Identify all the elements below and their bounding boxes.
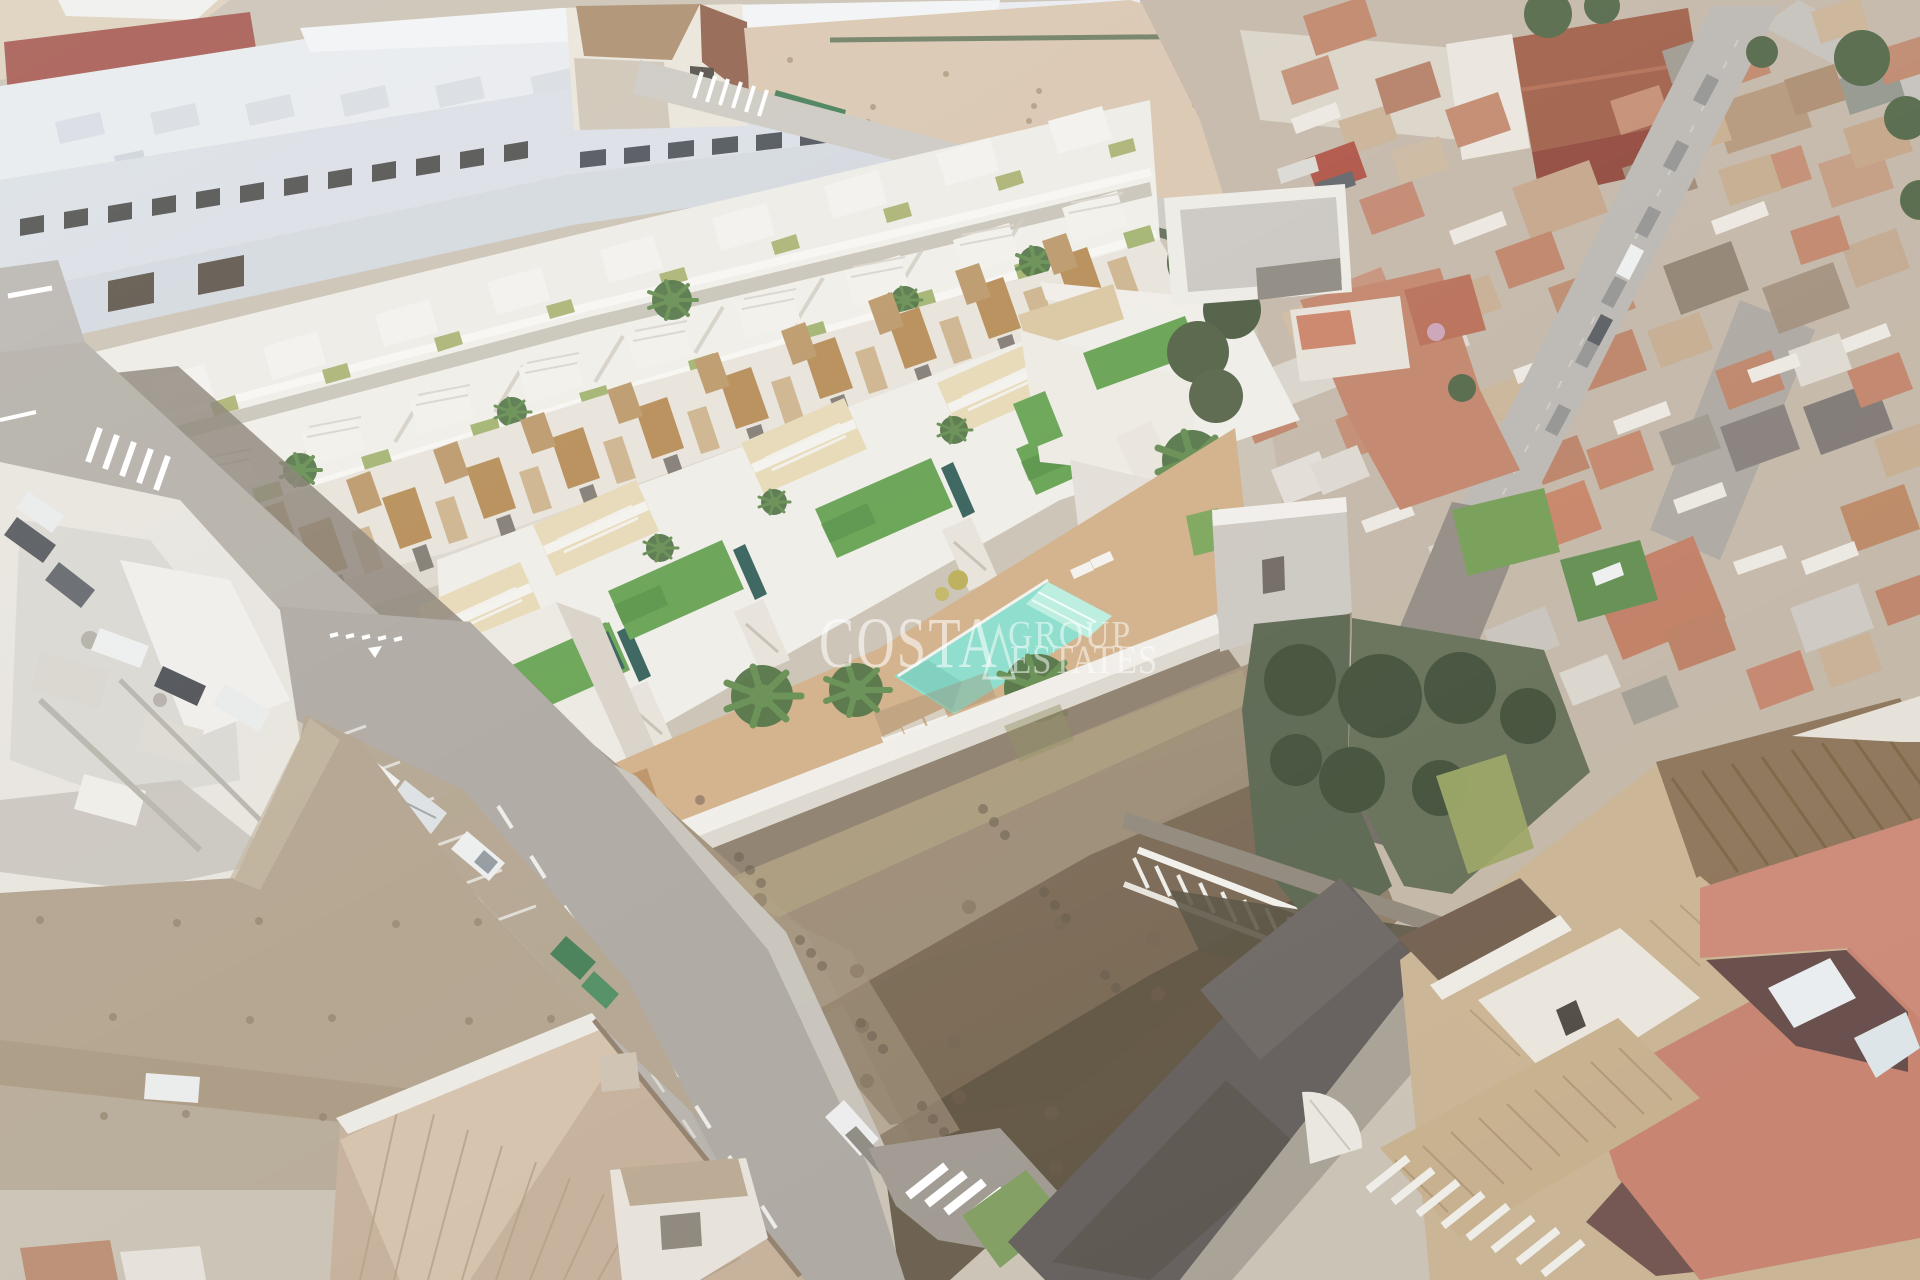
- svg-text:COSTA: COSTA: [819, 603, 999, 683]
- svg-text:ESTATES: ESTATES: [1010, 637, 1158, 682]
